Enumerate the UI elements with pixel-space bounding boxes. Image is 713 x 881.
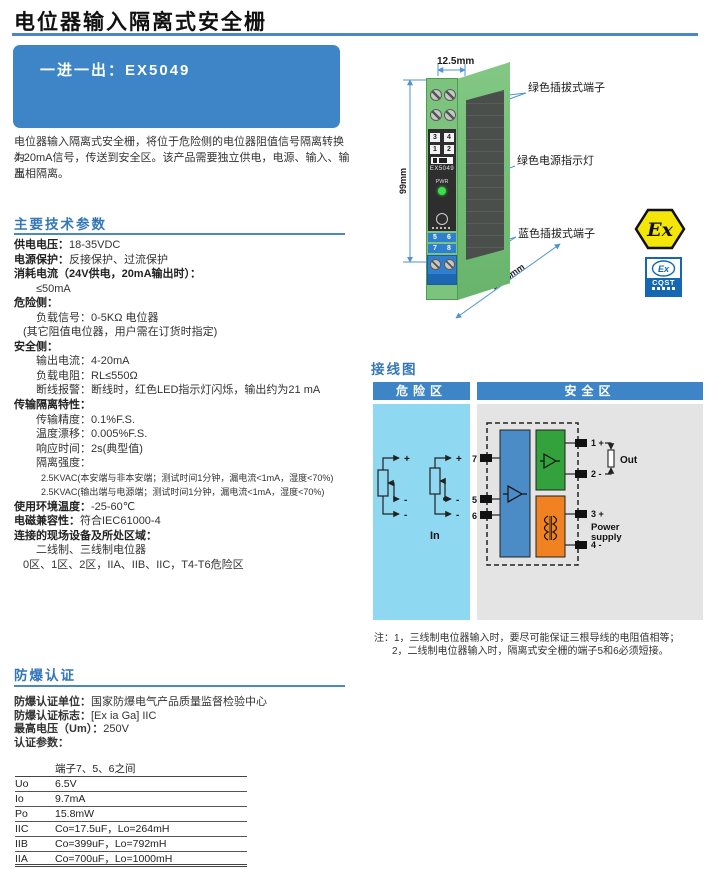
terminal-number: 4	[444, 133, 454, 142]
power-led-label: PWR	[428, 179, 456, 185]
cqst-ex-text: Ex	[658, 264, 670, 274]
spec-line: 消耗电流（24V供电，20mA输出时）：	[14, 267, 364, 282]
cqst-label-area: CQST	[647, 278, 680, 295]
intro-line: 互相隔离。	[14, 166, 354, 182]
table-row: IIACo=700uF，Lo=1000mH	[15, 852, 247, 867]
cert-mark-icon	[436, 213, 448, 225]
pot1-minus-label: -	[404, 495, 407, 506]
spec-line: 二线制、三线制电位器	[14, 543, 364, 558]
datasheet-page: 电位器输入隔离式安全栅 一进一出：EX5049 电位器输入隔离式安全栅，将位于危…	[0, 0, 713, 881]
section-cert-heading: 防爆认证	[14, 664, 76, 684]
spec-line: 2.5KVAC(本安端与非本安端；测试时间1分钟，漏电流<1mA，湿度<70%)	[14, 471, 364, 486]
pot2-minus-label: -	[456, 495, 459, 506]
atex-ex-text: Ex	[646, 219, 673, 241]
spec-line: 电磁兼容性：符合IEC61000-4	[14, 514, 364, 529]
cert-line: 防爆认证单位：国家防爆电气产品质量监督检验中心	[14, 696, 364, 710]
intro-line: 电位器输入隔离式安全栅，将位于危险侧的电位器阻值信号隔离转换为	[14, 134, 354, 150]
terminal-number: 7	[433, 244, 437, 253]
terminal-screw	[444, 259, 455, 270]
product-model-label: 一进一出：EX5049	[40, 59, 190, 80]
terminal-number-row: 3 4	[430, 133, 454, 142]
cert-line: 认证参数：	[14, 737, 364, 751]
blue-terminal-block	[427, 255, 457, 285]
spec-line: 供电电压：18-35VDC	[14, 238, 364, 253]
device-side-recess	[466, 90, 504, 260]
intro-line: 4-20mA信号，传送到安全区。该产品需要独立供电，电源、输入、输出	[14, 150, 354, 166]
cert-line: 防爆认证标志：[Ex ia Ga] IIC	[14, 710, 364, 724]
atex-ex-logo: Ex	[634, 206, 686, 252]
device-front-panel: 3 4 1 2 EX5049 PWR 5 6 7 8	[426, 78, 458, 300]
intro-paragraph: 电位器输入隔离式安全栅，将位于危险侧的电位器阻值信号隔离转换为 4-20mA信号…	[14, 134, 354, 182]
cqst-ex-icon: Ex	[647, 259, 680, 278]
terminal-7-label: 7	[472, 454, 477, 464]
wiring-note: 2，二线制电位器输入时，隔离式安全栅的端子5和6必须短接。	[392, 642, 669, 657]
terminal-screw	[444, 109, 456, 121]
cqst-small-text	[652, 287, 676, 290]
terminal-6-label: 6	[472, 511, 477, 521]
out-label: Out	[620, 455, 638, 466]
terminal-1-label: 1 +	[591, 438, 604, 448]
cert-line: 最高电压（Um）：250V	[14, 723, 364, 737]
terminal-number-row: 7 8	[428, 244, 456, 253]
device-model-label: EX5049	[428, 166, 456, 172]
spec-line: 0区、1区、2区，IIA、IIB、IIC，T4-T6危险区	[14, 558, 364, 573]
pot1-plus-label: +	[404, 454, 410, 465]
pot2-minus-label: -	[456, 510, 459, 521]
table-row: Uo6.5V	[15, 777, 247, 792]
callout-blue-terminal: 蓝色插拔式端子	[518, 225, 595, 241]
dim-height-label: 99mm	[398, 168, 408, 194]
section-tech-heading: 主要技术参数	[14, 213, 107, 233]
spec-line: 危险侧：	[14, 296, 364, 311]
terminal-5-label: 5	[472, 495, 477, 505]
page-title: 电位器输入隔离式安全栅	[14, 6, 267, 36]
table-row: Io9.7mA	[15, 792, 247, 807]
callout-green-terminal: 绿色插拔式端子	[528, 79, 605, 95]
terminal-screw	[430, 259, 441, 270]
power-supply-label: supply	[591, 532, 622, 543]
spec-line: ≤50mA	[14, 282, 364, 297]
spec-line: 响应时间：2s(典型值)	[14, 442, 364, 457]
spec-line: 2.5KVAC(输出端与电源端；测试时间1分钟，漏电流<1mA，湿度<70%)	[14, 485, 364, 500]
wiring-schematic: + - - + - - 7 5 6 1 + 2 - 3 + 4 - In Out…	[368, 404, 713, 620]
cqst-text: CQST	[647, 278, 680, 287]
spec-line: 传输隔离特性：	[14, 398, 364, 413]
terminal-2-label: 2 -	[591, 469, 602, 479]
terminal-number: 6	[447, 233, 451, 242]
spec-line: 使用环境温度：-25-60℃	[14, 500, 364, 515]
spec-line: 断线报警：断线时，红色LED指示灯闪烁，输出约为21 mA	[14, 383, 364, 398]
terminal-number: 8	[447, 244, 451, 253]
terminal-number: 1	[430, 145, 440, 154]
section-tech-rule	[14, 233, 345, 235]
terminal-number: 2	[444, 145, 454, 154]
hazard-zone-bar: 危险区	[373, 382, 470, 400]
wiring-diagram: 接线图 危险区 安全区	[368, 358, 713, 668]
terminal-number-row: 1 2	[430, 145, 454, 154]
spec-line: 负载信号：0-5KΩ 电位器	[14, 311, 364, 326]
spec-line: 隔离强度：	[14, 456, 364, 471]
spec-line: 负载电阻：RL≤550Ω	[14, 369, 364, 384]
device-label-panel: 3 4 1 2 EX5049 PWR	[428, 129, 456, 231]
title-rule	[12, 33, 698, 36]
brand-logo	[431, 157, 453, 164]
terminal-number: 3	[430, 133, 440, 142]
pot2-plus-label: +	[456, 454, 462, 465]
pot1-minus-label: -	[404, 510, 407, 521]
dim-width-label: 12.5mm	[437, 56, 474, 67]
table-row: Po15.8mW	[15, 807, 247, 822]
table-row: IIBCo=399uF，Lo=792mH	[15, 837, 247, 852]
terminal-screw	[430, 109, 442, 121]
cqst-logo: Ex CQST	[645, 257, 682, 297]
spec-line: 传输精度：0.1%F.S.	[14, 413, 364, 428]
blue-terminal-lower	[428, 274, 456, 284]
spec-line: 连接的现场设备及所处区域：	[14, 529, 364, 544]
device-side-panel	[458, 62, 510, 300]
safe-zone-bar: 安全区	[477, 382, 703, 400]
spec-line: (其它阻值电位器，用户需在订货时指定)	[14, 325, 364, 340]
product-model-box: 一进一出：EX5049	[13, 45, 340, 128]
spec-line: 输出电流：4-20mA	[14, 354, 364, 369]
terminal-screw	[430, 89, 442, 101]
spec-line: 安全侧：	[14, 340, 364, 355]
spec-line: 温度漂移：0.005%F.S.	[14, 427, 364, 442]
spec-line: 电源保护：反接保护、过流保护	[14, 253, 364, 268]
callout-power-led: 绿色电源指示灯	[517, 152, 594, 168]
terminal-number-row: 5 6	[428, 233, 456, 242]
terminal-3-label: 3 +	[591, 509, 604, 519]
cert-parameters-table: 端子7、5、6之间 Uo6.5V Io9.7mA Po15.8mW IICCo=…	[15, 762, 247, 867]
terminal-screw	[444, 89, 456, 101]
power-led	[438, 187, 446, 195]
in-label: In	[430, 530, 440, 542]
table-header-row: 端子7、5、6之间	[15, 762, 247, 777]
device-figure: 12.5mm 99mm 114.5mm	[398, 48, 698, 348]
table-header: 端子7、5、6之间	[55, 762, 136, 776]
section-cert-rule	[14, 685, 345, 687]
cert-info-lines: 防爆认证单位：国家防爆电气产品质量监督检验中心 防爆认证标志：[Ex ia Ga…	[14, 696, 364, 750]
cert-mark-text	[432, 227, 452, 229]
tech-spec-list: 供电电压：18-35VDC 电源保护：反接保护、过流保护 消耗电流（24V供电，…	[14, 238, 364, 573]
terminal-number: 5	[433, 233, 437, 242]
table-row: IICCo=17.5uF，Lo=264mH	[15, 822, 247, 837]
section-wiring-heading: 接线图	[371, 358, 418, 378]
